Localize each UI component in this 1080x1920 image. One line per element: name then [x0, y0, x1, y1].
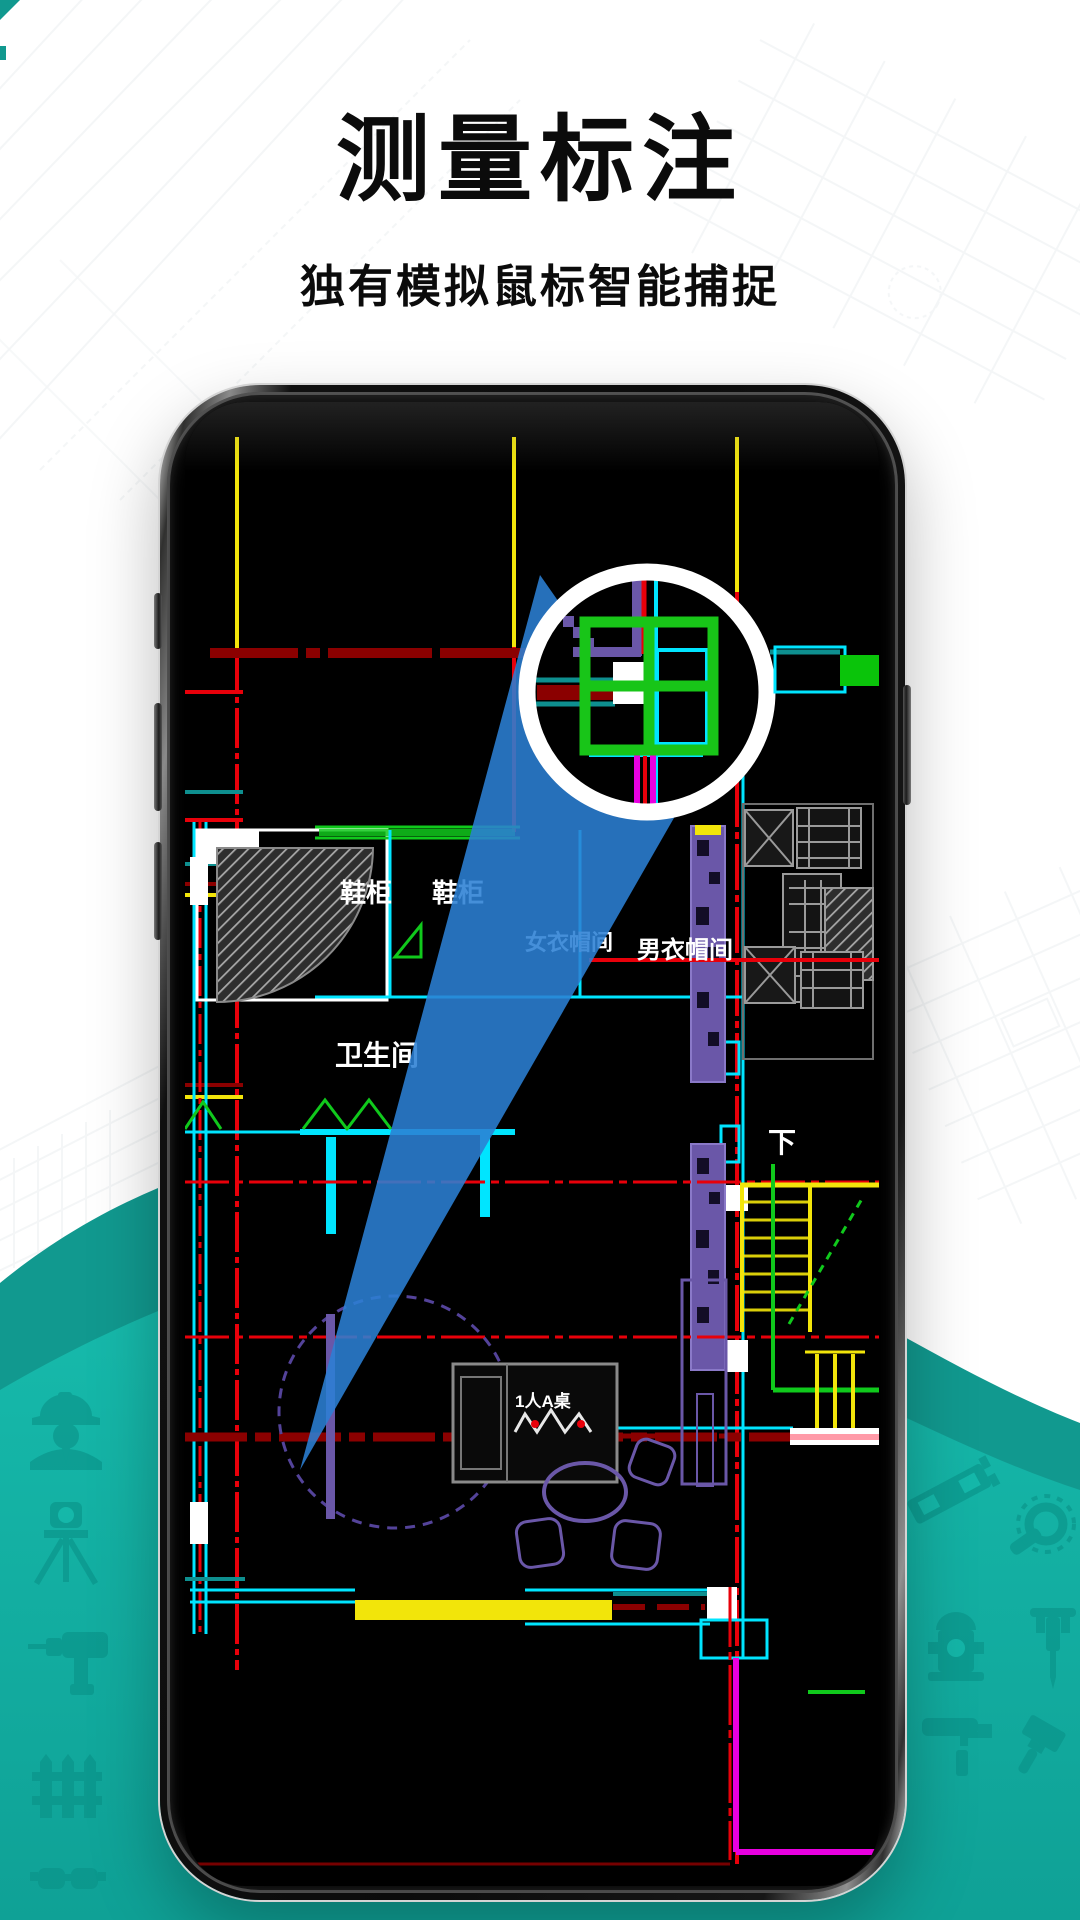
power-button	[903, 685, 911, 805]
purple-cabinet-strips	[691, 826, 725, 1370]
volume-down-button	[154, 842, 162, 940]
volume-up-button	[154, 703, 162, 811]
magnifier-circle	[527, 572, 767, 812]
phone-screen: 鞋柜 鞋柜 卫生间 女衣帽间 男衣帽间 下 1人A桌	[185, 402, 879, 1886]
label-bathroom: 卫生间	[335, 1040, 419, 1071]
fence-icon	[32, 1754, 102, 1818]
gray-furniture-blocks	[743, 804, 873, 1059]
label-dining-table: 1人A桌	[515, 1392, 572, 1411]
label-entry-cabinet-1: 鞋柜	[340, 878, 392, 908]
label-closet-male: 男衣帽间	[637, 936, 733, 964]
phone-mockup: 鞋柜 鞋柜 卫生间 女衣帽间 男衣帽间 下 1人A桌	[160, 385, 905, 1900]
promo-page: { "page": { "title": "测量标注", "subtitle":…	[0, 0, 1080, 1920]
mute-switch	[154, 593, 162, 649]
label-stairs-down: 下	[768, 1127, 796, 1158]
page-title: 测量标注	[0, 84, 1080, 220]
screen-glare	[185, 402, 879, 472]
zigzag-symbols	[185, 1100, 415, 1132]
page-subtitle: 独有模拟鼠标智能捕捉	[0, 250, 1080, 315]
bottom-corridor	[355, 1587, 875, 1860]
cad-floorplan: 鞋柜 鞋柜 卫生间 女衣帽间 男衣帽间 下 1人A桌	[185, 402, 879, 1886]
hatched-fan	[217, 848, 373, 1002]
corner-accent	[0, 0, 70, 70]
